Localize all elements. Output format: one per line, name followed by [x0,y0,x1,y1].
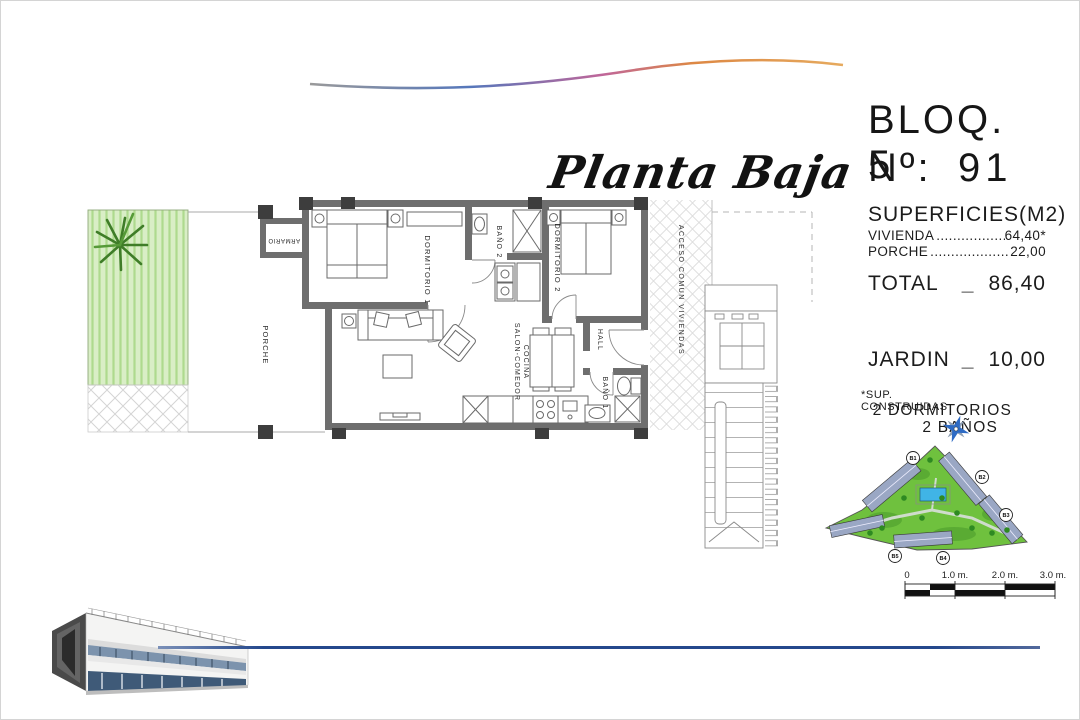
coffee-table [383,355,412,378]
scale-tick-2: 2.0 m. [992,570,1018,581]
top-swoosh-decoration [305,52,850,107]
jardin-label: JARDIN [868,348,950,372]
bed-dormitorio1 [312,210,403,278]
label-salon-line1: SALON-COMEDOR [513,323,520,401]
staircase-icon [705,383,778,548]
scale-bar: 0 1.0 m. 2.0 m. 3.0 m. [893,566,1079,604]
row-value: 22,00 [1010,244,1046,259]
shower-bano2 [513,210,541,252]
scale-bar-blocks [905,581,1055,599]
wardrobe-corridor [517,263,540,301]
surface-row-porche: PORCHE .......................... 22,00 [868,244,1046,259]
label-bano2: BAÑO 2 [495,226,504,259]
shower-bano1 [615,396,640,422]
plan-sheet: Planta Baja BLOQ. 5 Nº: 91 SUPERFICIES(M… [0,0,1080,720]
label-dormitorio2: DORMITORIO 2 [553,223,562,292]
tv-cabinet [380,413,420,420]
row-value: 64,40* [1005,228,1046,243]
site-plan: B1 B2 B3 B4 B5 [822,438,1062,578]
label-hall: HALL [596,329,603,351]
building-render-logo [30,597,270,709]
total-label: TOTAL [868,272,939,296]
badge-b3: B3 [1002,513,1009,519]
scale-tick-0: 0 [904,570,909,581]
stair-elevator-core [705,285,778,548]
label-acceso: ACCESO COMUN VIVIENDAS [677,225,684,355]
badge-b2: B2 [978,475,985,481]
vanity-corridor [495,263,515,301]
jardin-value: 10,00 [988,348,1046,372]
unit-number-value: 91 [958,146,1013,191]
row-dots: .......................... [934,228,1004,243]
feature-bathrooms: 2 BAÑOS [870,419,998,437]
garden-area [88,210,188,432]
site-pool [916,485,950,504]
sofa [358,310,443,340]
surface-row-vivienda: VIVIENDA .......................... 64,4… [868,228,1046,243]
total-separator: _ [962,272,975,296]
dresser-dormitorio1 [407,212,462,226]
jardin-separator: _ [962,348,975,372]
badge-b4: B4 [939,556,947,562]
scale-tick-3: 3.0 m. [1040,570,1066,581]
bottom-accent-line [158,646,1040,649]
badge-b1: B1 [909,456,916,462]
sink-bano2 [472,214,487,234]
badge-b5: B5 [891,554,898,560]
unit-number-label: Nº: [868,146,932,191]
label-armario: ARMARIO [268,237,300,243]
dining-table [530,328,574,391]
scale-tick-1: 1.0 m. [942,570,968,581]
side-table-lamp [342,314,356,328]
surfaces-title: SUPERFICIES(M2) [868,203,1066,227]
label-salon-line2: COCINA [522,345,529,379]
row-dots: .......................... [928,244,1010,259]
label-bano1: BAÑO 1 [601,377,610,410]
total-row: TOTAL _ 86,40 [868,272,1046,296]
row-label: PORCHE [868,244,928,259]
label-dormitorio1: DORMITORIO 1 [423,235,432,304]
total-value: 86,40 [988,272,1046,296]
toilet-bano1 [618,377,642,395]
kitchen-counter [463,396,588,423]
row-label: VIVIENDA [868,228,934,243]
jardin-row: JARDIN _ 10,00 [868,348,1046,372]
floor-plan: PORCHE ARMARIO DORMITORIO 1 BAÑO 2 DORMI… [75,190,815,575]
label-porche: PORCHE [261,325,270,364]
